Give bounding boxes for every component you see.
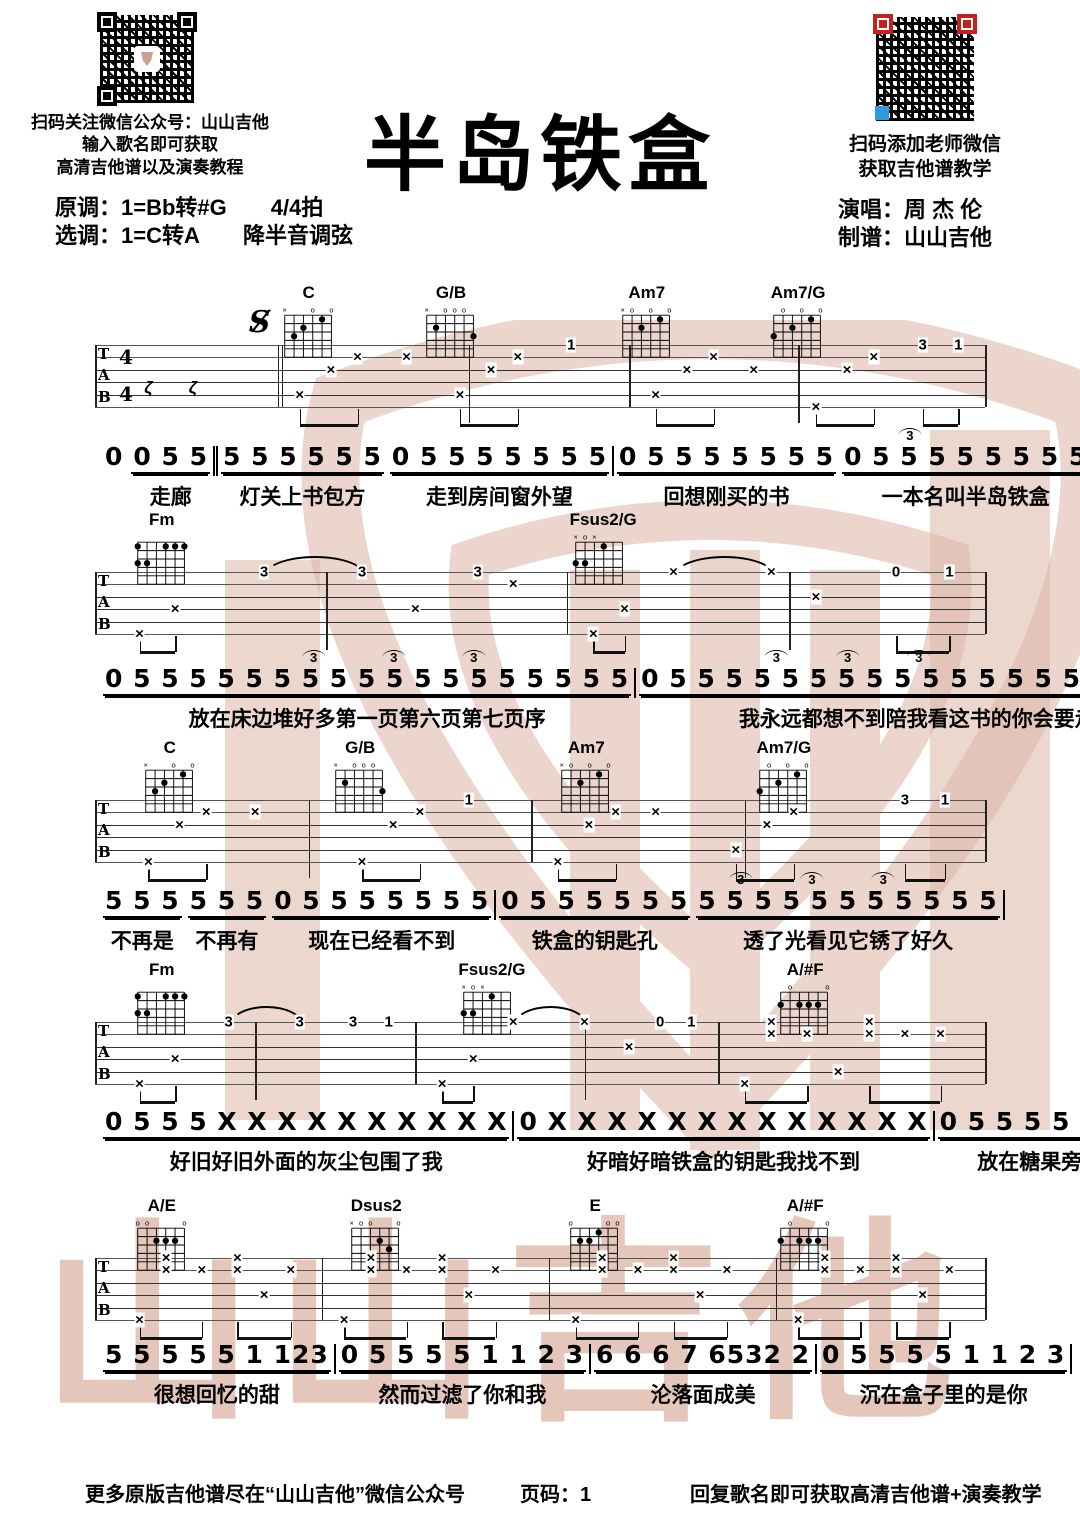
note-stem (326, 572, 328, 650)
qr-right-caption-1: 扫码添加老师微信 (800, 132, 1050, 157)
note-stem (789, 572, 791, 650)
svg-text:o: o (781, 305, 785, 314)
barline (322, 1258, 324, 1320)
tab-clef-letter: B (98, 1303, 111, 1318)
chord-diagram: Eooo (565, 1196, 625, 1278)
chord-name: Am7/G (754, 738, 814, 758)
qr-right-captions: 扫码添加老师微信 获取吉他谱教学 (800, 132, 1050, 182)
tab-mark: 3 (223, 1015, 233, 1030)
svg-text:o: o (397, 1218, 401, 1227)
chord-name: Fsus2/G (458, 960, 518, 980)
staff-line (95, 1059, 985, 1060)
chord-diagram: Fm (132, 960, 192, 1042)
chord-grid: ooo (565, 1217, 625, 1278)
melody-cell: 0 5 5 5 5 5 5 5走到房间窗外望 (387, 443, 612, 511)
tab-mark: × (437, 1263, 448, 1278)
melody-notes: 0 5 5 (131, 443, 210, 474)
lyric-text: 回想刚买的书 (617, 481, 836, 511)
beam-stem (945, 864, 947, 880)
barline (95, 345, 97, 407)
chord-name: G/B (330, 738, 390, 758)
tab-clef-letter: B (98, 617, 111, 632)
triplet-mark: 3 (729, 872, 752, 887)
beam-stem (807, 1086, 809, 1102)
tab-mark: × (486, 362, 497, 377)
qr-square-blue (875, 106, 889, 120)
tab-mark: × (935, 1027, 946, 1042)
tab-mark: × (174, 817, 185, 832)
qr-right-caption-2: 获取吉他谱教学 (800, 157, 1050, 182)
svg-text:o: o (800, 305, 804, 314)
qr-finder-red (957, 14, 977, 34)
tab-mark: 1 (464, 793, 474, 808)
tab-mark: × (294, 387, 305, 402)
svg-text:o: o (310, 305, 314, 314)
beam-stem (202, 1322, 204, 1338)
beam (593, 651, 624, 654)
staff-line (95, 800, 985, 801)
melody-cell: 0 5 5 5 5 1 1 2 3然而过滤了你和我 (336, 1341, 589, 1409)
tab-mark: × (681, 362, 692, 377)
tab-mark: × (401, 350, 412, 365)
svg-text:o: o (443, 305, 447, 314)
beam-stem (896, 1322, 898, 1338)
lyric-text: 好旧好旧外面的灰尘包围了我 (103, 1146, 509, 1176)
beam-stem (175, 1086, 177, 1102)
chord-grid: ×ooo (421, 304, 481, 365)
beam-stem (860, 1322, 862, 1338)
melody-line: 5 5 5 5 5 1 123很想回忆的甜0 5 5 5 5 1 1 2 3然而… (100, 1341, 990, 1409)
tab-mark: 3 (473, 565, 483, 580)
lyric-text: 我永远都想不到陪我看这书的你会要走 (639, 703, 1080, 733)
svg-text:o: o (569, 1218, 573, 1227)
chord-name: Fm (132, 510, 192, 530)
tab-mark: × (695, 1288, 706, 1303)
qr-finder-red (873, 14, 893, 34)
tab-mark: 1 (953, 338, 963, 353)
staff-line (95, 1034, 985, 1035)
tab-mark: × (134, 1313, 145, 1328)
tab-mark: × (579, 1015, 590, 1030)
tab-clef-letter: A (98, 368, 110, 383)
tab-mark: × (891, 1263, 902, 1278)
tab-mark: × (650, 805, 661, 820)
svg-text:o: o (171, 760, 175, 769)
tab-mark: × (811, 400, 822, 415)
staff-line (95, 825, 985, 826)
melody-cell: 0 X X X X X X X X X X X X X好暗好暗铁盒的钥匙我找不到 (514, 1108, 932, 1176)
tab-mark: × (143, 855, 154, 870)
tab-mark: 0 (891, 565, 901, 580)
triplet-mark: 3 (907, 650, 930, 665)
tab-mark: 3 (918, 338, 928, 353)
tab-clef-letter: B (98, 390, 111, 405)
chord-name: A/#F (775, 1196, 835, 1216)
tab-mark: × (250, 805, 261, 820)
melody-notes: 5 5 5 5 5 1 123 (103, 1341, 331, 1372)
tab-mark: × (490, 1263, 501, 1278)
tab-mark: × (134, 1077, 145, 1092)
beam (362, 879, 420, 882)
beam (140, 1101, 176, 1104)
beam-stem (905, 864, 907, 880)
footer-center: 页码：1 (520, 1478, 591, 1507)
tab-clef-letter: A (98, 595, 110, 610)
tab-mark: 3 (900, 793, 910, 808)
svg-text:o: o (462, 305, 466, 314)
svg-text:o: o (788, 1218, 792, 1227)
tab-mark: × (766, 565, 777, 580)
triplet-mark: 3 (382, 650, 405, 665)
chord-diagram: C×oo (140, 738, 200, 820)
svg-text:o: o (362, 760, 366, 769)
svg-text:o: o (615, 1218, 619, 1227)
tab-mark: × (730, 842, 741, 857)
melody-barline (213, 446, 215, 476)
barline (95, 1022, 97, 1084)
melody-cell: 0 5 5 5 5 5 5 5现在已经看不到 (269, 887, 494, 955)
quarter-rest-icon: ζ (189, 378, 197, 398)
svg-text:o: o (471, 982, 475, 991)
tab-mark: 3 (357, 565, 367, 580)
staff-line (95, 1270, 985, 1271)
tab-mark: × (437, 1077, 448, 1092)
barline (718, 1022, 720, 1084)
beam-stem (949, 636, 951, 652)
tab-mark: × (668, 565, 679, 580)
triplet-mark: 3 (302, 650, 325, 665)
tab-clef-letter: T (98, 1024, 109, 1039)
chord-diagram: Am7×ooo (556, 738, 616, 820)
tab-clef-letter: A (98, 1045, 110, 1060)
chord-name: Am7 (556, 738, 616, 758)
beam-stem (420, 864, 422, 880)
beam (656, 424, 714, 427)
beam-stem (175, 636, 177, 652)
staff-line (95, 357, 985, 358)
melody-notes: 0 5 5 5 5 1 1 2 3 (820, 1341, 1067, 1372)
tab-clef-letter: T (98, 802, 109, 817)
tab-mark: × (455, 387, 466, 402)
triplet-mark: 3 (462, 650, 485, 665)
svg-text:×: × (350, 1218, 354, 1227)
staff-line (95, 345, 985, 346)
tab-mark: × (552, 855, 563, 870)
beam-stem (237, 1322, 239, 1338)
chord-diagram: Fm (132, 510, 192, 592)
beam (923, 424, 959, 427)
beam (442, 1101, 473, 1104)
staff-line (95, 609, 985, 610)
chord-name: Fsus2/G (570, 510, 630, 530)
beam (905, 879, 945, 882)
triplet-mark: 3 (898, 428, 921, 443)
melody-cell: 0 5 5 5 5 5 5 5 5一本名叫半岛铁盒 (839, 443, 1080, 511)
tab-mark: 1 (384, 1015, 394, 1030)
svg-text:×: × (620, 305, 624, 314)
tab-mark: 3 (348, 1015, 358, 1030)
tab-mark: 1 (944, 565, 954, 580)
qr-finder (97, 12, 117, 32)
chord-grid: ××o (458, 981, 518, 1042)
tab-mark: × (161, 1263, 172, 1278)
melody-line: 5 5 5不再是5 5 5不再有0 5 5 5 5 5 5 5现在已经看不到0 … (100, 887, 990, 955)
lyric-text: 沉在盒子里的是你 (820, 1379, 1067, 1409)
beam-stem (896, 636, 898, 652)
staff-line (95, 837, 985, 838)
beam (558, 879, 616, 882)
lyric-text: 放在床边堆好多第一页第六页第七页序 (103, 703, 631, 733)
melody-cell: 0 5 5 5 X X X X X X X X X X好旧好旧外面的灰尘包围了我 (100, 1108, 512, 1176)
beam (869, 1101, 940, 1104)
svg-text:×: × (143, 760, 147, 769)
svg-text:×: × (425, 305, 429, 314)
footer-right: 回复歌名即可获取高清吉他谱+演奏教学 (690, 1478, 1042, 1507)
lyric-text: 不再是 (103, 925, 182, 955)
beam-stem (625, 636, 627, 652)
beam-stem (460, 409, 462, 425)
note-stem (309, 800, 311, 878)
tab-mark: × (170, 1052, 181, 1067)
chord-diagram: Fsus2/G××o (570, 510, 630, 592)
tab-mark: × (619, 602, 630, 617)
chord-diagram: Am7/Gooo (754, 738, 814, 820)
staff-line (95, 1295, 985, 1296)
svg-text:o: o (583, 532, 587, 541)
melody-line: 0 5 5 5 X X X X X X X X X X好旧好旧外面的灰尘包围了我… (100, 1108, 990, 1176)
chord-grid: ×ooo (617, 304, 677, 365)
chord-name: A/#F (775, 960, 835, 980)
beam (745, 1101, 807, 1104)
tab-mark: 1 (940, 793, 950, 808)
beam-stem (727, 1322, 729, 1338)
chord-grid: ×ooo (556, 759, 616, 820)
chord-grid: ×oo (140, 759, 200, 820)
time-signature-bottom: 4 (119, 384, 133, 404)
barline (95, 1258, 97, 1320)
tab-mark: × (339, 1313, 350, 1328)
melody-cell: 0 5 5 5 5 5 5 5 5 5 5 5 5 5 5 5 5 5 5 5我… (636, 665, 1080, 733)
staff-line (95, 1072, 985, 1073)
melody-line: 0 5 5 5 5 5 5 5 5 5 5 5 5 5 5 5 5 5 5放在床… (100, 665, 990, 733)
svg-text:×: × (334, 760, 338, 769)
tab-mark: × (597, 1263, 608, 1278)
tab-mark: 1 (686, 1015, 696, 1030)
svg-text:o: o (353, 760, 357, 769)
beam-stem (656, 409, 658, 425)
chord-grid: ××o (570, 531, 630, 592)
svg-text:o: o (369, 1218, 373, 1227)
svg-text:o: o (329, 305, 333, 314)
svg-text:o: o (788, 982, 792, 991)
note-stem (745, 800, 747, 878)
chord-diagram: G/B×ooo (330, 738, 390, 820)
tab-mark: × (512, 350, 523, 365)
tab-mark: 1 (566, 338, 576, 353)
lyric-text: 现在已经看不到 (272, 925, 491, 955)
chord-name: C (279, 283, 339, 303)
barline (549, 1258, 551, 1320)
tab-mark: × (855, 1263, 866, 1278)
qr-finder (177, 12, 197, 32)
tab-mark: × (633, 1263, 644, 1278)
svg-text:o: o (826, 982, 830, 991)
chord-diagram: Am7/Gooo (768, 283, 828, 365)
tab-mark: × (414, 805, 425, 820)
beam-stem (358, 409, 360, 425)
triplet-mark: 3 (872, 872, 895, 887)
tab-mark: × (748, 362, 759, 377)
tab-mark: × (610, 805, 621, 820)
svg-text:o: o (359, 1218, 363, 1227)
melody-notes: 5 5 5 (188, 887, 267, 918)
beam-stem (794, 864, 796, 880)
barline (985, 1258, 987, 1320)
chord-grid: ooo (768, 304, 828, 365)
staff-line (95, 597, 985, 598)
melody-line: 00 5 5走廊5 5 5 5 5 5灯关上书包方0 5 5 5 5 5 5 5… (100, 443, 990, 511)
staff-line (95, 395, 985, 396)
beam-stem (638, 1322, 640, 1338)
svg-text:o: o (786, 760, 790, 769)
svg-text:×: × (282, 305, 286, 314)
beam-stem (958, 409, 960, 425)
key-selected: 选调：1=C转A 降半音调弦 (55, 218, 353, 250)
chord-name: C (140, 738, 200, 758)
melody-notes: 0 (103, 443, 125, 472)
svg-text:×: × (573, 532, 577, 541)
melody-cell: 0 5 5 5 5 5 5铁盒的钥匙孔 (496, 887, 693, 955)
barline (95, 800, 97, 862)
tab-mark: × (833, 1064, 844, 1079)
chord-name: Am7/G (768, 283, 828, 303)
triplet-mark: 3 (800, 872, 823, 887)
svg-text:o: o (453, 305, 457, 314)
beam (140, 651, 176, 654)
svg-text:o: o (145, 1218, 149, 1227)
beam-stem (473, 1086, 475, 1102)
melody-notes: 5 5 5 (103, 887, 182, 918)
svg-text:o: o (569, 760, 573, 769)
melody-cell: 0 (100, 443, 128, 479)
tab-clef-letter: A (98, 1281, 110, 1296)
tab-mark: × (917, 1288, 928, 1303)
staff-line (95, 850, 985, 851)
melody-cell: 0 5 5 5 5 1 1 2 3放在糖果旁的是我 (935, 1108, 1080, 1176)
svg-text:o: o (135, 1218, 139, 1227)
svg-text:o: o (371, 760, 375, 769)
beam-stem (714, 409, 716, 425)
chord-diagram: Am7×ooo (617, 283, 677, 365)
tab-mark: × (864, 1027, 875, 1042)
tab-mark: × (868, 350, 879, 365)
tab-mark: × (508, 577, 519, 592)
tab-mark: × (285, 1263, 296, 1278)
melody-cell: 5 5 5 5 5 5 5 5 5 5 5透了光看见它锈了好久 (693, 887, 1002, 955)
chord-diagram: C×oo (279, 283, 339, 365)
melody-cell: 5 5 5不再是 (100, 887, 185, 955)
chord-name: G/B (421, 283, 481, 303)
staff-line (95, 572, 985, 573)
melody-cell: 0 5 5 5 5 5 5 5 5 5 5 5 5 5 5 5 5 5 5放在床… (100, 665, 634, 733)
staff-line (95, 407, 985, 408)
melody-notes: 0 5 5 5 5 5 5 5 (272, 887, 491, 918)
staff-line (95, 634, 985, 635)
melody-cell: 5 5 5不再有 (185, 887, 270, 955)
tab-mark: × (196, 1263, 207, 1278)
chord-name: A/E (132, 1196, 192, 1216)
beam (300, 424, 358, 427)
svg-text:o: o (648, 305, 652, 314)
tab-mark: × (708, 350, 719, 365)
chord-name: E (565, 1196, 625, 1216)
chord-grid (132, 981, 192, 1042)
staff-line (95, 1283, 985, 1284)
tab-mark: × (357, 855, 368, 870)
melody-cell: 0 5 5 5 5 5 5 5回想刚买的书 (614, 443, 839, 511)
lyric-text: 走到房间窗外望 (390, 481, 609, 511)
qr-code-right (873, 14, 977, 124)
melody-notes: 0 X X X X X X X X X X X X X (517, 1108, 929, 1139)
time-signature-top: 4 (119, 347, 133, 367)
barline (985, 572, 987, 634)
beam-stem (874, 409, 876, 425)
tab-mark: × (508, 1015, 519, 1030)
svg-text:o: o (818, 305, 822, 314)
tab-clef-letter: T (98, 1260, 109, 1275)
tab-mark: × (788, 805, 799, 820)
tab-clef-letter: B (98, 1067, 111, 1082)
tab-mark: × (134, 627, 145, 642)
melody-notes: 0 5 5 5 5 5 5 5 5 5 5 5 5 5 5 5 5 5 5 5 (639, 665, 1080, 696)
barline (985, 800, 987, 862)
beam-stem (518, 409, 520, 425)
beam-stem (674, 1322, 676, 1338)
tab-mark: × (570, 1313, 581, 1328)
chord-grid: ×oo (279, 304, 339, 365)
tab-mark: × (766, 1027, 777, 1042)
tab-mark: × (232, 1263, 243, 1278)
tab-clef-letter: A (98, 823, 110, 838)
svg-text:o: o (607, 760, 611, 769)
tab-mark: × (762, 817, 773, 832)
staff-line (95, 1320, 985, 1321)
note-stem (255, 1022, 257, 1100)
tab-mark: × (468, 1052, 479, 1067)
tab-clef-letter: B (98, 845, 111, 860)
lyric-text: 沦落面成美 (594, 1379, 812, 1409)
lyric-text: 然而过滤了你和我 (339, 1379, 586, 1409)
svg-text:o: o (667, 305, 671, 314)
triplet-mark: 3 (765, 650, 788, 665)
tab-mark: × (352, 350, 363, 365)
tab-mark: × (170, 602, 181, 617)
chord-grid: ×ooo (330, 759, 390, 820)
beam-stem (616, 864, 618, 880)
staff-line (95, 812, 985, 813)
tab-mark: 3 (259, 565, 269, 580)
tab-mark: × (722, 1263, 733, 1278)
tab-mark: × (259, 1288, 270, 1303)
staff-line (95, 1258, 985, 1259)
beam-stem (407, 1322, 409, 1338)
svg-text:o: o (826, 1218, 830, 1227)
svg-text:o: o (190, 760, 194, 769)
staff-line (95, 1308, 985, 1309)
tab-mark: × (802, 1027, 813, 1042)
staff-line (95, 862, 985, 863)
melody-cell: 5 5 5 5 5 5灯关上书包方 (218, 443, 387, 511)
